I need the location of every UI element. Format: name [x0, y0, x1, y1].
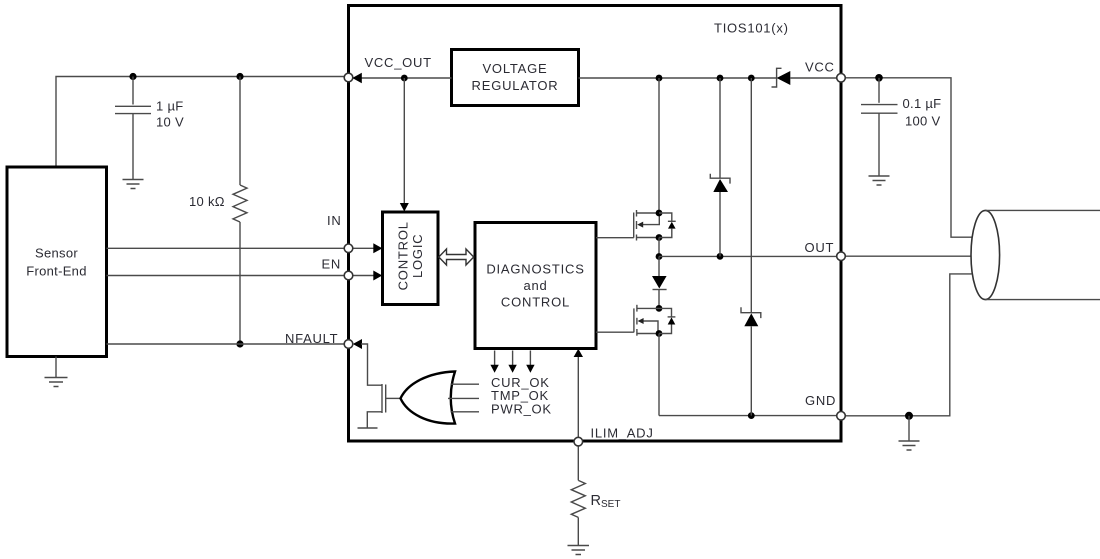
svg-text:100 V: 100 V — [905, 113, 941, 128]
svg-text:CONTROL: CONTROL — [501, 295, 570, 310]
svg-text:TIOS101(x): TIOS101(x) — [714, 21, 789, 36]
svg-text:IN: IN — [327, 213, 342, 228]
svg-text:CONTROL: CONTROL — [395, 221, 410, 290]
svg-text:1 µF: 1 µF — [156, 99, 183, 114]
svg-text:ILIM_ADJ: ILIM_ADJ — [591, 425, 654, 440]
svg-text:0.1 µF: 0.1 µF — [903, 96, 942, 111]
svg-text:10 kΩ: 10 kΩ — [189, 194, 225, 209]
svg-text:PWR_OK: PWR_OK — [491, 402, 552, 417]
svg-text:REGULATOR: REGULATOR — [472, 78, 559, 93]
svg-text:LOGIC: LOGIC — [410, 234, 425, 278]
svg-text:DIAGNOSTICS: DIAGNOSTICS — [486, 262, 584, 277]
svg-text:Front-End: Front-End — [26, 264, 87, 279]
svg-text:GND: GND — [805, 393, 836, 408]
svg-text:VCC: VCC — [805, 60, 835, 75]
svg-text:VOLTAGE: VOLTAGE — [482, 61, 547, 76]
svg-text:NFAULT: NFAULT — [285, 331, 338, 346]
svg-text:10 V: 10 V — [156, 115, 184, 130]
svg-text:OUT: OUT — [805, 240, 835, 255]
svg-text:Sensor: Sensor — [35, 246, 78, 261]
svg-text:EN: EN — [322, 257, 342, 272]
svg-text:and: and — [523, 278, 547, 293]
svg-text:VCC_OUT: VCC_OUT — [365, 55, 432, 70]
